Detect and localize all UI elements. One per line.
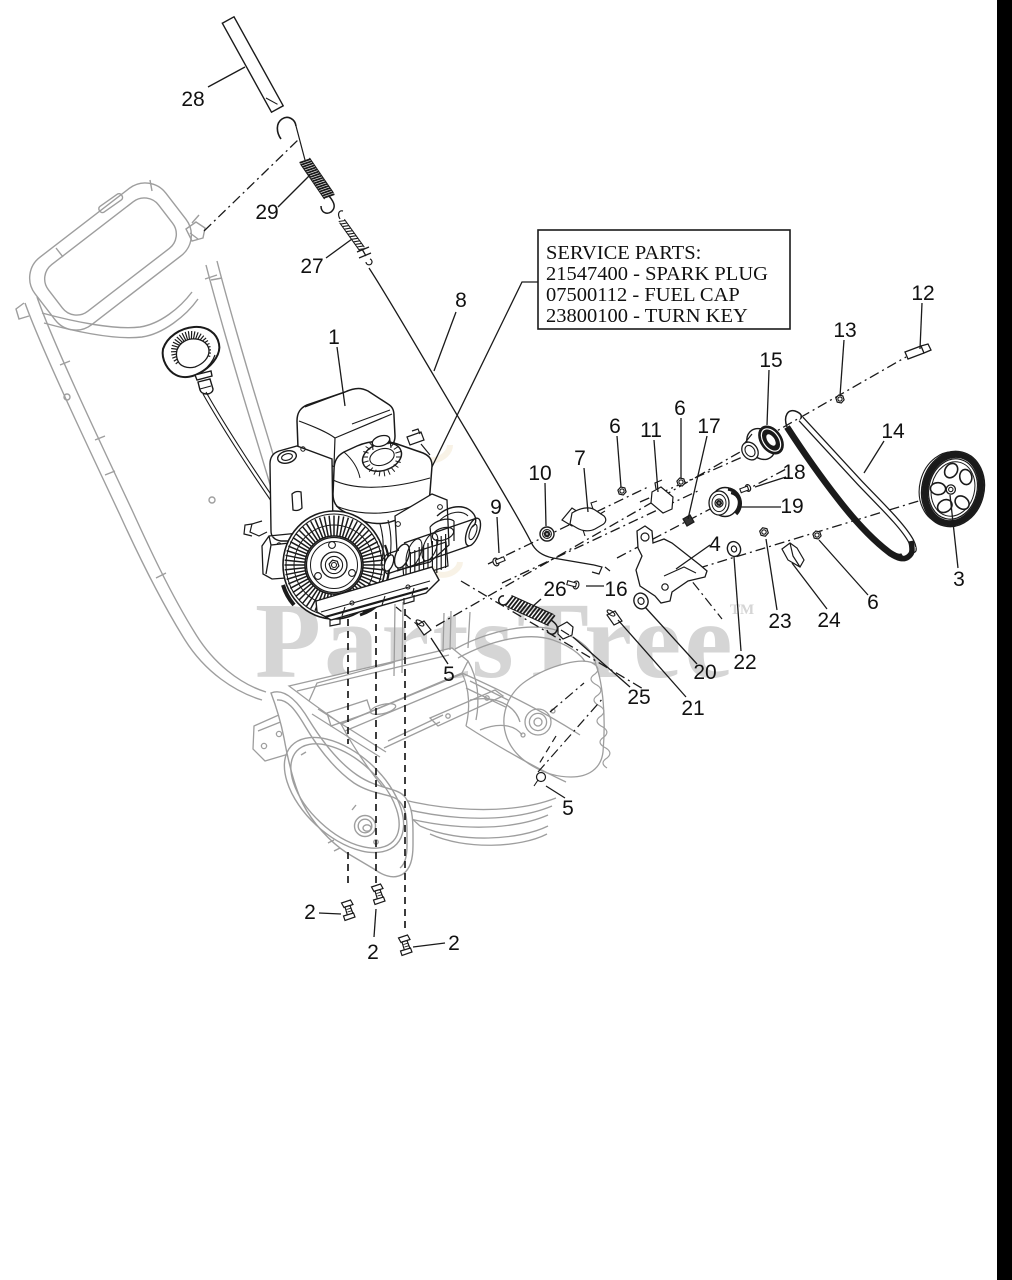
svg-text:23: 23 (768, 610, 791, 633)
svg-text:12: 12 (911, 282, 934, 305)
svg-text:15: 15 (759, 349, 782, 372)
svg-text:TM: TM (730, 602, 754, 618)
svg-text:07500112 - FUEL CAP: 07500112 - FUEL CAP (546, 284, 740, 306)
svg-text:24: 24 (817, 609, 841, 632)
svg-text:4: 4 (709, 533, 721, 556)
svg-text:5: 5 (562, 797, 574, 820)
svg-text:25: 25 (627, 686, 650, 709)
svg-text:6: 6 (674, 397, 686, 420)
svg-text:SERVICE PARTS:: SERVICE PARTS: (546, 242, 701, 264)
svg-text:13: 13 (833, 319, 856, 342)
svg-text:16: 16 (604, 578, 627, 601)
svg-text:2: 2 (367, 941, 379, 964)
svg-text:21: 21 (681, 697, 704, 720)
svg-text:2: 2 (448, 932, 460, 955)
svg-text:21547400 - SPARK PLUG: 21547400 - SPARK PLUG (546, 263, 768, 285)
svg-text:7: 7 (574, 447, 586, 470)
svg-text:22: 22 (733, 651, 756, 674)
svg-text:20: 20 (693, 661, 716, 684)
svg-text:10: 10 (528, 462, 551, 485)
svg-text:6: 6 (867, 591, 879, 614)
svg-text:26: 26 (543, 578, 566, 601)
svg-text:28: 28 (181, 88, 204, 111)
svg-text:6: 6 (609, 415, 621, 438)
svg-text:9: 9 (490, 496, 502, 519)
svg-text:8: 8 (455, 289, 467, 312)
svg-text:29: 29 (255, 201, 278, 224)
svg-text:1: 1 (328, 326, 340, 349)
svg-text:5: 5 (443, 663, 455, 686)
svg-text:11: 11 (640, 419, 662, 442)
svg-text:19: 19 (780, 495, 803, 518)
svg-text:2: 2 (304, 901, 316, 924)
svg-text:14: 14 (881, 420, 905, 443)
svg-text:3: 3 (953, 568, 965, 591)
svg-text:27: 27 (300, 255, 323, 278)
svg-text:17: 17 (697, 415, 720, 438)
svg-text:18: 18 (782, 461, 805, 484)
svg-text:23800100 - TURN KEY: 23800100 - TURN KEY (546, 305, 748, 327)
